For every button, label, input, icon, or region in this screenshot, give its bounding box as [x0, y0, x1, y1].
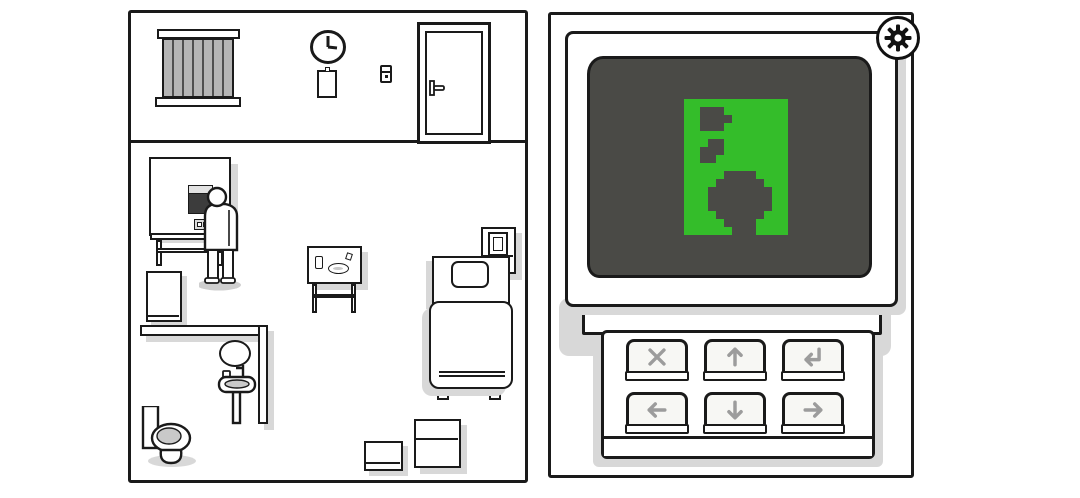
key-up[interactable] — [704, 339, 766, 375]
screen-pixel — [708, 187, 716, 195]
notepad[interactable] — [317, 70, 337, 98]
screen-pixel — [748, 211, 756, 219]
screen-pixel — [716, 107, 724, 115]
table-crossbar — [312, 294, 356, 298]
key-down[interactable] — [704, 392, 766, 428]
screen-pixel — [756, 203, 764, 211]
screen-pixel — [732, 187, 740, 195]
game-screen — [0, 0, 1080, 498]
settings-button[interactable] — [876, 16, 920, 60]
man-head — [208, 188, 226, 206]
screen-pixel — [716, 179, 724, 187]
arrow-up-icon — [722, 344, 748, 370]
screen-pixel — [748, 219, 756, 227]
man-standing[interactable] — [199, 186, 247, 292]
screen-pixel — [708, 123, 716, 131]
monitor — [565, 31, 898, 307]
screen-pixel — [724, 203, 732, 211]
screen-pixel — [756, 211, 764, 219]
picture-inner — [493, 237, 503, 251]
screen-pixel — [700, 147, 708, 155]
screen-pixel — [740, 179, 748, 187]
screen-pixel — [764, 195, 772, 203]
fridge[interactable] — [146, 271, 182, 322]
cross-icon — [644, 344, 670, 370]
arrow-right-icon — [800, 397, 826, 423]
toilet[interactable] — [141, 406, 197, 468]
picture-frame[interactable] — [488, 232, 508, 256]
screen-pixel — [756, 187, 764, 195]
screen-pixel — [700, 115, 708, 123]
screen-pixel — [724, 115, 732, 123]
fridge-line — [148, 315, 179, 317]
arrow-down-icon — [722, 397, 748, 423]
screen-pixel — [732, 171, 740, 179]
screen-pixel — [748, 179, 756, 187]
screen-pixel — [708, 155, 716, 163]
room-panel — [128, 10, 528, 483]
screen-pixel — [716, 115, 724, 123]
table-item[interactable] — [345, 252, 353, 261]
bed-headboard — [432, 256, 510, 304]
screen-pixel — [732, 211, 740, 219]
screen-pixel — [716, 147, 724, 155]
device-panel — [548, 12, 914, 478]
screen-pixel — [764, 203, 772, 211]
screen-pixel-art — [684, 99, 788, 235]
enter-icon — [800, 344, 826, 370]
table-leg-right — [351, 284, 356, 313]
screen-pixel — [732, 219, 740, 227]
gear-icon — [883, 23, 913, 53]
key-enter[interactable] — [782, 339, 844, 375]
screen-pixel — [740, 203, 748, 211]
window-blinds[interactable] — [162, 38, 234, 98]
bed-foot-left — [437, 389, 449, 400]
wall-clock[interactable] — [309, 29, 347, 65]
screen-pixel — [740, 227, 748, 235]
screen-pixel — [708, 195, 716, 203]
side-table[interactable] — [307, 246, 362, 284]
screen-pixel — [740, 171, 748, 179]
screen-pixel — [748, 203, 756, 211]
sink-faucet — [236, 365, 243, 377]
partition-counter-top — [140, 325, 268, 336]
screen-pixel — [716, 195, 724, 203]
screen-pixel — [708, 203, 716, 211]
switch-toggle — [385, 75, 388, 78]
screen-pixel — [732, 179, 740, 187]
screen-pixel — [732, 227, 740, 235]
screen-pixel — [756, 195, 764, 203]
screen-pixel — [748, 195, 756, 203]
blanket-line-1 — [439, 371, 505, 373]
arrow-left-icon — [644, 397, 670, 423]
screen-pixel — [708, 147, 716, 155]
screen-pixel — [724, 171, 732, 179]
screen-pixel — [708, 107, 716, 115]
toilet-seat — [157, 428, 181, 444]
cup[interactable] — [315, 256, 323, 269]
screen-pixel — [716, 203, 724, 211]
screen-pixel — [732, 203, 740, 211]
screen-pixel — [732, 195, 740, 203]
screen-pixel — [716, 139, 724, 147]
screen-pixel — [724, 179, 732, 187]
screen-pixel — [724, 195, 732, 203]
keypad-keys — [626, 339, 844, 436]
door-frame — [417, 22, 491, 144]
notepad-clip — [325, 67, 330, 72]
door-handle[interactable] — [429, 79, 447, 99]
small-box-line — [366, 462, 400, 464]
light-switch[interactable] — [380, 65, 392, 83]
large-box[interactable] — [414, 419, 461, 468]
door[interactable] — [425, 31, 483, 135]
blanket-line-2 — [439, 375, 505, 377]
sink[interactable] — [217, 363, 257, 425]
window-sill — [155, 97, 241, 107]
screen-pixel — [748, 187, 756, 195]
screen-pixel — [748, 227, 756, 235]
screen-pixel — [708, 115, 716, 123]
screen-pixel — [716, 187, 724, 195]
screen-pixel — [740, 219, 748, 227]
key-left[interactable] — [626, 392, 688, 428]
screen-pixel — [764, 187, 772, 195]
pillow[interactable] — [451, 261, 489, 288]
screen-pixel — [740, 195, 748, 203]
screen-pixel — [740, 187, 748, 195]
screen-pixel — [700, 107, 708, 115]
plate-food — [333, 267, 343, 271]
small-box[interactable] — [364, 441, 403, 471]
sink-basin — [225, 380, 249, 388]
monitor-screen[interactable] — [587, 56, 872, 278]
keypad — [601, 330, 875, 459]
screen-pixel — [700, 155, 708, 163]
key-right[interactable] — [782, 392, 844, 428]
screen-pixel — [716, 211, 724, 219]
bed[interactable] — [429, 301, 513, 389]
screen-pixel — [724, 187, 732, 195]
screen-pixel — [700, 123, 708, 131]
screen-pixel — [748, 171, 756, 179]
key-cancel[interactable] — [626, 339, 688, 375]
screen-pixel — [740, 211, 748, 219]
screen-pixel — [724, 219, 732, 227]
plate[interactable] — [328, 263, 349, 274]
large-box-line — [416, 438, 458, 440]
bed-foot-right — [489, 389, 501, 400]
screen-pixel — [716, 123, 724, 131]
switch-slot — [382, 71, 390, 73]
screen-pixel — [708, 139, 716, 147]
table-leg-left — [312, 284, 317, 313]
partition-counter-side — [258, 325, 268, 424]
screen-pixel — [724, 211, 732, 219]
keypad-base — [604, 436, 872, 456]
desk-leg-left — [156, 240, 162, 266]
screen-pixel — [756, 179, 764, 187]
